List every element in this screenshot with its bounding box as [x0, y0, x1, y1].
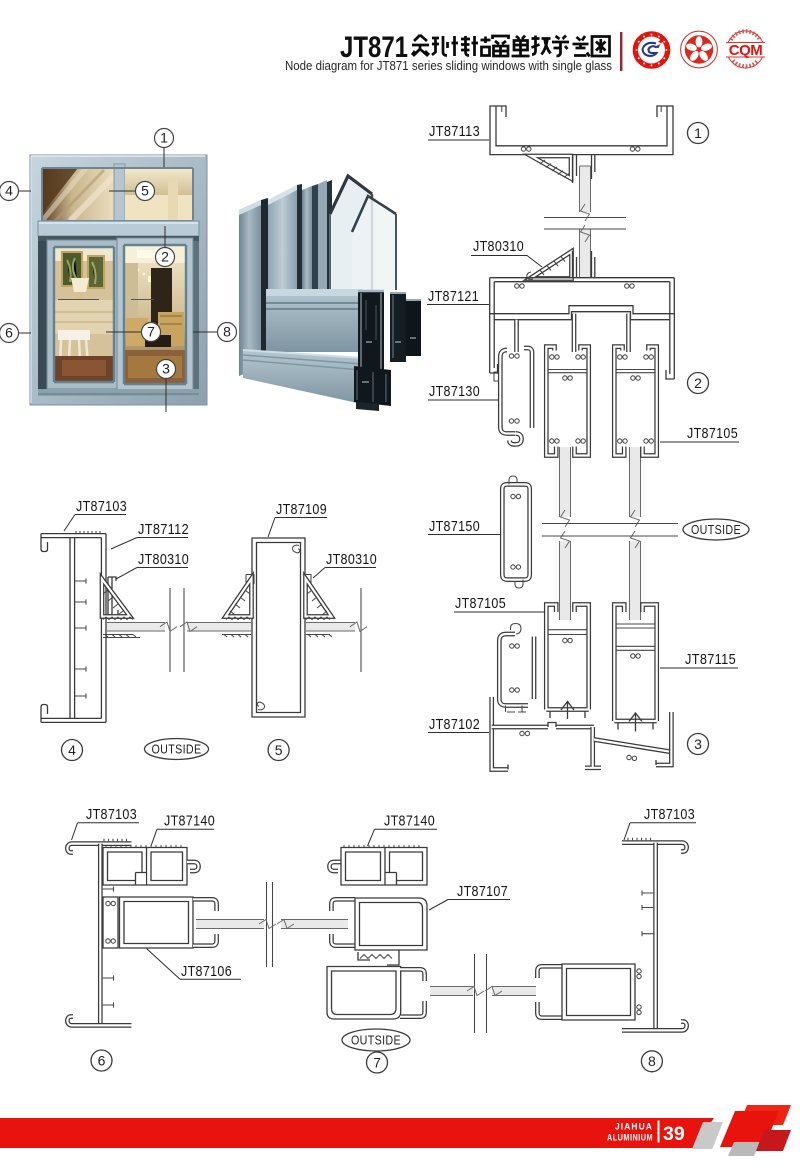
svg-text:JT87102: JT87102 — [429, 716, 480, 733]
svg-text:JT87140: JT87140 — [164, 813, 215, 830]
svg-text:Node diagram for JT871 series: Node diagram for JT871 series sliding wi… — [285, 59, 612, 73]
svg-text:3: 3 — [694, 736, 702, 752]
svg-text:JT87121: JT87121 — [428, 288, 479, 305]
svg-text:JIAHUA: JIAHUA — [615, 1122, 653, 1132]
svg-text:JT87150: JT87150 — [429, 518, 480, 535]
svg-text:JT87105: JT87105 — [455, 595, 506, 612]
svg-text:7: 7 — [147, 324, 155, 340]
svg-text:OUTSIDE: OUTSIDE — [691, 523, 741, 537]
svg-text:JT80310: JT80310 — [326, 551, 377, 568]
svg-text:JT87130: JT87130 — [429, 383, 480, 400]
svg-text:ALUMINIUM: ALUMINIUM — [607, 1133, 653, 1143]
svg-text:JT87113: JT87113 — [429, 123, 480, 140]
svg-text:JT87106: JT87106 — [181, 963, 232, 980]
svg-text:CQM: CQM — [729, 42, 763, 59]
svg-text:OUTSIDE: OUTSIDE — [351, 1033, 401, 1047]
svg-text:5: 5 — [141, 183, 149, 199]
svg-text:7: 7 — [373, 1054, 381, 1070]
svg-text:1: 1 — [694, 125, 702, 141]
svg-text:JT87103: JT87103 — [644, 806, 695, 823]
svg-text:JT80310: JT80310 — [138, 551, 189, 568]
svg-text:JT87140: JT87140 — [384, 813, 435, 830]
svg-text:4: 4 — [68, 742, 76, 758]
svg-text:JT87107: JT87107 — [457, 883, 508, 900]
svg-text:8: 8 — [223, 324, 231, 340]
svg-text:JT80310: JT80310 — [473, 238, 524, 255]
svg-text:6: 6 — [98, 1052, 106, 1068]
svg-text:OUTSIDE: OUTSIDE — [152, 742, 202, 756]
svg-text:JT87103: JT87103 — [76, 498, 127, 515]
svg-text:5: 5 — [275, 742, 283, 758]
svg-text:JT87112: JT87112 — [138, 521, 189, 538]
svg-text:39: 39 — [663, 1123, 685, 1145]
svg-text:8: 8 — [648, 1053, 656, 1069]
svg-text:4: 4 — [5, 183, 13, 199]
svg-text:JT87109: JT87109 — [276, 501, 327, 518]
svg-text:JT87115: JT87115 — [685, 651, 736, 668]
svg-text:2: 2 — [694, 375, 702, 391]
svg-text:2: 2 — [161, 249, 169, 265]
svg-text:3: 3 — [162, 361, 170, 377]
svg-text:JT87105: JT87105 — [687, 425, 738, 442]
svg-text:6: 6 — [5, 325, 13, 341]
svg-text:1: 1 — [160, 130, 168, 146]
svg-text:JT87103: JT87103 — [86, 806, 137, 823]
